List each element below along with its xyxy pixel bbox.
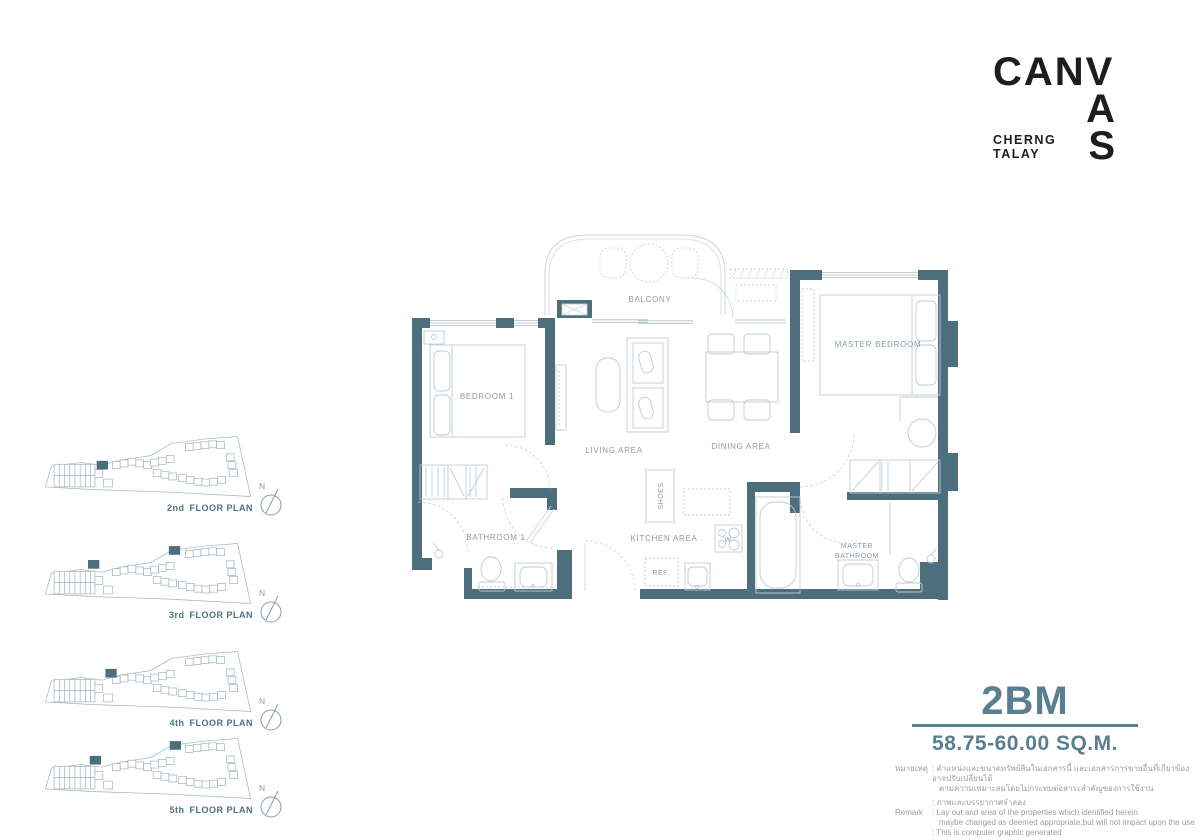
- door-arcs: [418, 433, 854, 591]
- north-arrow-icon: N: [257, 584, 287, 628]
- logo-text-canv: CANV: [993, 54, 1115, 90]
- master-bath-toilet: [896, 558, 922, 592]
- shower-door-arc: [418, 502, 468, 552]
- floor-row-3rd: 3rdFLOOR PLAN N: [25, 540, 281, 640]
- living-area-label: LIVING AREA: [585, 446, 643, 455]
- master-bath-shower: [927, 548, 937, 563]
- floor-suffix: FLOOR PLAN: [190, 805, 254, 815]
- refrigerator-label: REF.: [652, 570, 669, 577]
- unit-info: 2BM 58.75-60.00 SQ.M.: [905, 681, 1145, 756]
- floor-ordinal: 4th: [170, 718, 185, 728]
- remark-en-label: Remark: [895, 808, 932, 838]
- master-bathroom-label-line2: BATHROOM: [835, 553, 879, 560]
- entry-door-arc: [585, 541, 635, 591]
- unit-area-label: 58.75-60.00 SQ.M.: [905, 732, 1145, 756]
- floor-suffix: FLOOR PLAN: [190, 610, 254, 620]
- site-plan-thumbnail-2nd: [25, 433, 271, 513]
- balcony-chair: [672, 248, 698, 278]
- dining-set: [706, 334, 778, 420]
- bathroom1-shower: [433, 543, 552, 587]
- site-plan-thumbnail-5th: [25, 735, 271, 815]
- logo-subtitle-line2: TALAY: [993, 147, 1056, 161]
- balcony-label: BALCONY: [628, 295, 671, 304]
- floor-suffix: FLOOR PLAN: [190, 503, 254, 513]
- north-label: N: [259, 588, 265, 598]
- bedroom1-bed: [430, 345, 525, 437]
- balcony-door-arc: [693, 278, 733, 318]
- master-bath-sink: [838, 560, 878, 590]
- highlighted-unit: [105, 669, 116, 678]
- living-sofa: [627, 338, 668, 432]
- ac-ledge: [730, 269, 788, 301]
- walls: [412, 270, 958, 600]
- remark-thai-label: หมายเหตุ: [895, 764, 932, 808]
- remark-thai-line3: : ภาพและบรรยากาศจำลอง: [932, 798, 1195, 808]
- remark-thai-line1: : ตำแหน่งและขนาดทรัพย์สินในเอกสารนี้ และ…: [932, 764, 1195, 784]
- site-plan-thumbnail-3rd: [25, 540, 271, 620]
- floor-plan-label-3rd: 3rdFLOOR PLAN: [169, 610, 253, 620]
- remark-block: หมายเหตุ : ตำแหน่งและขนาดทรัพย์สินในเอกส…: [895, 764, 1195, 838]
- master-bathroom-label-line1: MASTER: [841, 543, 873, 550]
- kitchen-sink: [685, 563, 710, 590]
- north-label: N: [259, 783, 265, 793]
- site-plan-thumbnail-4th: [25, 648, 271, 728]
- master-bedroom-door-arc: [800, 433, 854, 487]
- floor-ordinal: 3rd: [169, 610, 185, 620]
- unit-floor-plan: BALCONY BEDROOM 1 MASTER BEDROOM LIVING …: [400, 225, 960, 615]
- windows: [430, 273, 918, 326]
- bathroom1-toilet: [479, 557, 505, 591]
- floor-suffix: FLOOR PLAN: [190, 718, 254, 728]
- floor-plan-label-4th: 4thFLOOR PLAN: [170, 718, 254, 728]
- remark-thai: หมายเหตุ : ตำแหน่งและขนาดทรัพย์สินในเอกส…: [895, 764, 1195, 808]
- kitchen-counter: [684, 489, 730, 515]
- logo-subtitle-line1: CHERNG: [993, 133, 1056, 147]
- floor-row-2nd: 2ndFLOOR PLAN N: [25, 433, 281, 533]
- floor-row-4th: 4thFLOOR PLAN N: [25, 648, 281, 748]
- north-arrow-icon: N: [257, 692, 287, 736]
- logo-text-s: S: [1088, 127, 1115, 165]
- kitchen-area-label: KITCHEN AREA: [630, 534, 697, 543]
- brochure-page: CANV A S CHERNG TALAY 2ndFLOOR PLAN N 3r…: [0, 0, 1200, 840]
- dining-area-label: DINING AREA: [711, 442, 770, 451]
- master-wardrobe: [850, 460, 940, 493]
- floor-ordinal: 2nd: [167, 503, 185, 513]
- shoes-label: SHOES: [658, 482, 665, 509]
- master-desk-chair: [900, 397, 938, 447]
- north-label: N: [259, 696, 265, 706]
- bedroom1-wardrobe: [420, 465, 487, 499]
- divider-rule: [912, 724, 1138, 727]
- logo-subtitle: CHERNG TALAY: [993, 133, 1056, 161]
- balcony-chair: [600, 248, 626, 278]
- north-label: N: [259, 481, 265, 491]
- shaft-column: [562, 304, 587, 315]
- bathroom1-door-leaf: [527, 506, 554, 543]
- north-arrow-icon: N: [257, 477, 287, 521]
- bathroom1-label: BATHROOM 1: [466, 533, 525, 542]
- logo-text-a: A: [1086, 90, 1115, 128]
- floor-plan-label-2nd: 2ndFLOOR PLAN: [167, 503, 253, 513]
- master-bathroom-door-arc: [800, 496, 847, 543]
- floor-plan-label-5th: 5thFLOOR PLAN: [170, 805, 254, 815]
- remark-en-line1: : Lay out and area of the properties whi…: [932, 808, 1195, 818]
- balcony-table: [630, 244, 668, 282]
- bedroom1-nightstand: [424, 331, 444, 344]
- highlighted-unit: [97, 461, 108, 470]
- master-bedroom-label: MASTER BEDROOM: [835, 340, 922, 349]
- living-tv-console: [556, 365, 566, 430]
- remark-english: Remark : Lay out and area of the propert…: [895, 808, 1195, 838]
- washer-label: W: [724, 537, 731, 544]
- bedroom1-label: BEDROOM 1: [460, 392, 514, 401]
- north-arrow-icon: N: [257, 779, 287, 823]
- floor-ordinal: 5th: [170, 805, 185, 815]
- living-coffee-table: [596, 358, 620, 412]
- remark-en-line2: maybe changed as deemed appropriate,but …: [932, 818, 1195, 828]
- bedroom1-door-arc: [505, 445, 550, 490]
- floor-row-5th: 5thFLOOR PLAN N: [25, 735, 281, 835]
- unit-type-label: 2BM: [905, 681, 1145, 721]
- remark-thai-line2: ตามความเหมาะสมโดยไม่กระทบต่อสาระสำคัญของ…: [932, 784, 1195, 794]
- remark-en-line3: : This is computer graphic generated: [932, 828, 1195, 838]
